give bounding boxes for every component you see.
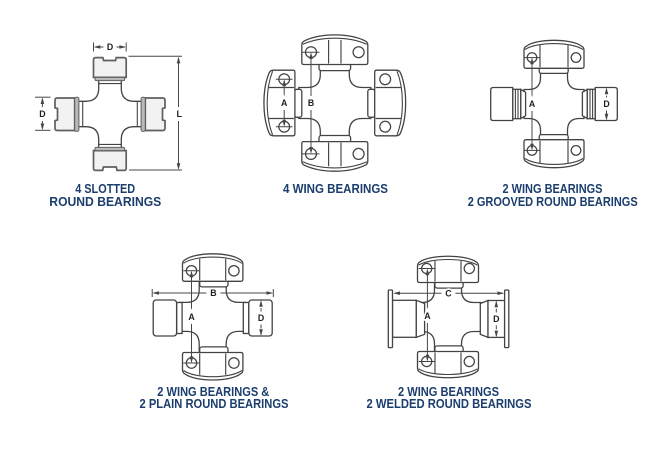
svg-text:ROUND BEARINGS: ROUND BEARINGS <box>49 194 161 209</box>
svg-text:D: D <box>603 99 609 109</box>
svg-text:2 PLAIN ROUND BEARINGS: 2 PLAIN ROUND BEARINGS <box>140 396 289 411</box>
svg-text:A: A <box>424 311 431 321</box>
svg-text:A: A <box>529 99 536 109</box>
svg-text:D: D <box>493 314 499 324</box>
svg-text:C: C <box>445 288 452 298</box>
svg-text:B: B <box>210 288 216 298</box>
svg-text:A: A <box>188 312 195 322</box>
svg-text:4 WING BEARINGS: 4 WING BEARINGS <box>283 181 388 196</box>
svg-text:2 GROOVED ROUND BEARINGS: 2 GROOVED ROUND BEARINGS <box>468 194 638 209</box>
svg-text:B: B <box>308 98 314 108</box>
svg-text:D: D <box>39 109 45 119</box>
svg-text:D: D <box>107 42 113 52</box>
svg-text:L: L <box>177 109 183 119</box>
svg-text:A: A <box>281 98 288 108</box>
svg-text:D: D <box>258 313 264 323</box>
svg-text:2 WELDED ROUND BEARINGS: 2 WELDED ROUND BEARINGS <box>367 396 532 411</box>
